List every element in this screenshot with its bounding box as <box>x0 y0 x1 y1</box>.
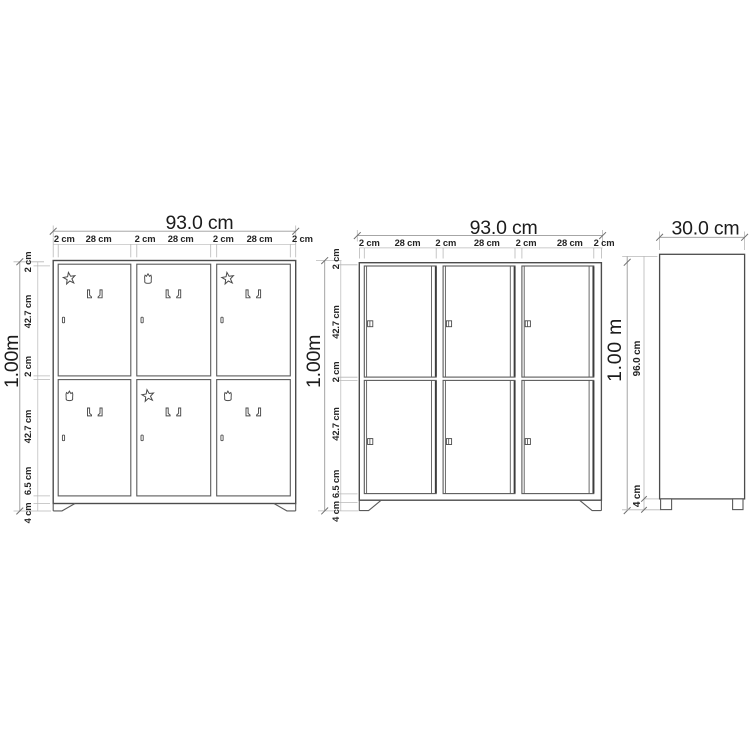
svg-text:2 cm: 2 cm <box>22 356 33 377</box>
svg-text:2 cm: 2 cm <box>516 237 537 248</box>
svg-text:28 cm: 28 cm <box>474 237 500 248</box>
svg-text:42.7 cm: 42.7 cm <box>22 295 33 328</box>
svg-text:2 cm: 2 cm <box>54 233 75 244</box>
svg-text:96.0 cm: 96.0 cm <box>632 340 643 376</box>
svg-text:28 cm: 28 cm <box>557 237 583 248</box>
svg-text:42.7 cm: 42.7 cm <box>330 407 341 440</box>
svg-text:2 cm: 2 cm <box>135 233 156 244</box>
svg-text:28 cm: 28 cm <box>247 233 273 244</box>
svg-text:4 cm: 4 cm <box>22 503 33 524</box>
svg-text:28 cm: 28 cm <box>168 233 194 244</box>
svg-text:2 cm: 2 cm <box>435 237 456 248</box>
svg-text:2 cm: 2 cm <box>330 249 341 270</box>
svg-text:28 cm: 28 cm <box>395 237 421 248</box>
svg-text:2 cm: 2 cm <box>292 233 313 244</box>
svg-text:42.7 cm: 42.7 cm <box>330 305 341 338</box>
svg-text:1.00 m: 1.00 m <box>604 318 626 382</box>
svg-text:2 cm: 2 cm <box>213 233 234 244</box>
svg-text:93.0 cm: 93.0 cm <box>166 212 234 234</box>
svg-text:42.7 cm: 42.7 cm <box>22 410 33 443</box>
svg-text:2 cm: 2 cm <box>22 252 33 273</box>
svg-text:28 cm: 28 cm <box>86 233 112 244</box>
svg-text:2 cm: 2 cm <box>594 237 615 248</box>
svg-text:4 cm: 4 cm <box>330 501 341 522</box>
svg-text:2 cm: 2 cm <box>359 237 380 248</box>
svg-text:30.0 cm: 30.0 cm <box>672 218 740 240</box>
svg-text:6.5 cm: 6.5 cm <box>330 470 341 498</box>
svg-text:1.00m: 1.00m <box>303 335 325 388</box>
svg-text:2 cm: 2 cm <box>330 362 341 383</box>
svg-text:6.5 cm: 6.5 cm <box>22 467 33 495</box>
svg-text:4 cm: 4 cm <box>632 485 643 507</box>
